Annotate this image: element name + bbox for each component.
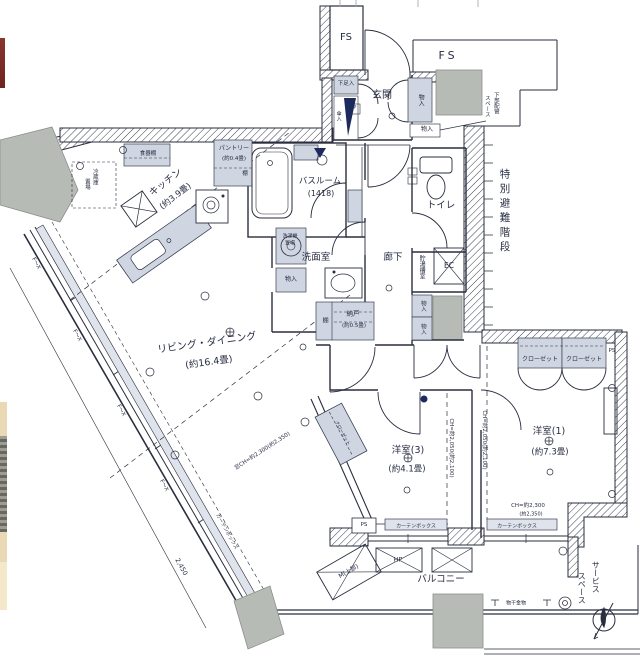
label-umbrella: 傘入 xyxy=(335,111,340,121)
label-service-b: スペース xyxy=(577,572,585,604)
label-hp: HP xyxy=(394,557,403,564)
label-cupboard: 食器棚 xyxy=(140,152,157,158)
label-fridge-a: 冷蔵庫 xyxy=(91,169,97,186)
label-storage-entrance-v: 物入 xyxy=(417,94,423,106)
label-entrance: 玄関 xyxy=(372,91,392,102)
label-bedroom1: 洋室(1) xyxy=(533,427,565,437)
label-storage-r1: 物入 xyxy=(419,301,425,312)
plan-drawing xyxy=(0,0,642,664)
label-ch-low-1: CH=約2,050(約2,100) xyxy=(447,418,453,477)
label-pantry: パントリー xyxy=(219,146,249,152)
floor-plan: FS FS 玄関 下足入 傘入 P 物入 物入 スペース 下部配管 特別避難階段… xyxy=(0,0,642,664)
label-shoe-cabinet: 下足入 xyxy=(338,82,355,88)
label-shelf-pantry: 棚 xyxy=(242,172,248,178)
label-corridor: 廊下 xyxy=(383,253,402,263)
label-washroom: 洗面室 xyxy=(302,253,331,263)
label-evacuation-stairs: 特別避難階段 xyxy=(498,169,509,256)
label-pantry-size: (約0.4畳) xyxy=(222,157,246,163)
label-pipe-space-b: スペース xyxy=(483,95,489,117)
label-curtain-box-1: カーテンボックス xyxy=(396,524,436,529)
label-bathroom-size: (1418) xyxy=(308,190,335,198)
label-closet-1: クローゼット xyxy=(522,357,558,363)
label-laundry-hardware: 物干金物 xyxy=(506,601,526,606)
label-ch-low-2: CH=約2,050(約2,100) xyxy=(480,410,486,469)
label-storage-r2: 物入 xyxy=(419,324,425,335)
label-washer-a: 洗濯機 xyxy=(282,234,297,239)
label-closet-2: クローゼット xyxy=(566,357,602,363)
label-fridge-b: 置場 xyxy=(83,179,89,190)
label-ps-right: PS xyxy=(609,349,616,355)
label-shelf-nando: 棚 xyxy=(321,317,327,323)
label-bedroom3-size: (約4.1畳) xyxy=(388,466,425,475)
label-p-mark: P xyxy=(354,107,357,112)
label-fs-shaft-2: FS xyxy=(438,50,457,62)
exterior-walls xyxy=(6,6,627,577)
label-bedroom1-size: (約7.3畳) xyxy=(531,449,568,458)
label-balcony: バルコニー xyxy=(417,575,464,585)
label-storage-entrance-h: 物入 xyxy=(421,127,433,133)
label-ec: EC xyxy=(444,262,454,270)
label-bedroom3: 洋室(3) xyxy=(392,446,424,456)
label-fs-shaft-1: FS xyxy=(340,33,352,44)
label-ch-a: CH=約2,300 xyxy=(511,504,545,510)
toilet-fixtures xyxy=(408,157,452,199)
label-nando-size: (約0.5畳) xyxy=(342,324,366,330)
label-ch-b: (約2,350) xyxy=(519,512,542,517)
window-wall-diagonal xyxy=(10,222,264,628)
label-toilet: トイレ xyxy=(427,201,456,211)
label-pipe-space-a: 下部配管 xyxy=(492,92,498,114)
label-washer-b: 置場 xyxy=(285,241,295,246)
compass-icon xyxy=(593,603,615,639)
label-bathroom: バスルーム xyxy=(299,178,341,187)
label-service-a: サービス xyxy=(591,561,599,593)
label-nando: 納戸 xyxy=(347,311,360,318)
balcony-columns xyxy=(234,586,483,649)
label-curtain-box-2: カーテンボックス xyxy=(497,524,537,529)
label-storage-ld: 物入 xyxy=(285,277,297,283)
label-ps-mid: PS xyxy=(361,523,368,529)
label-water-tank: 貯湯槽室 xyxy=(418,255,424,279)
